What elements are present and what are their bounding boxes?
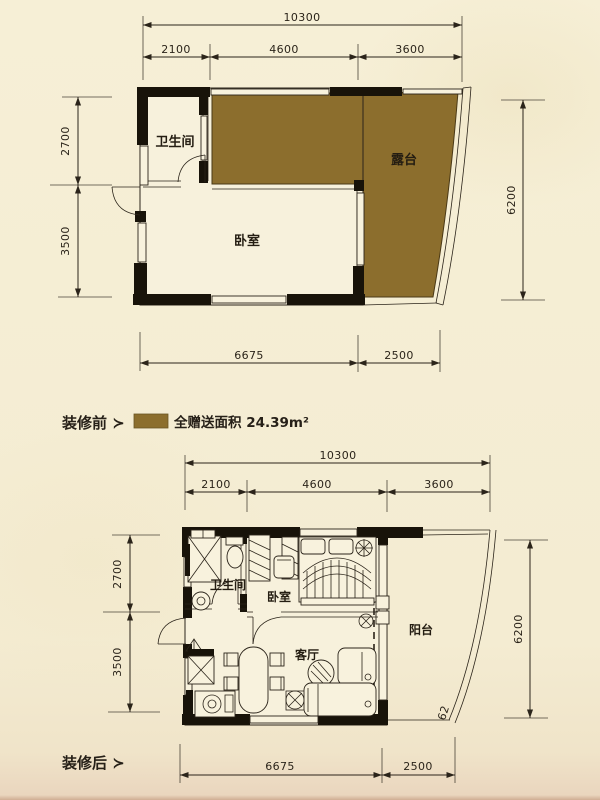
dim-h2: 3500 <box>59 226 72 256</box>
dim-w1: 2100 <box>161 43 191 56</box>
bathroom-cabinet <box>191 530 215 538</box>
dim-right-height-after: 6200 <box>512 614 525 644</box>
dim-right-height: 6200 <box>505 185 518 215</box>
dim-h2-after: 3500 <box>111 647 124 677</box>
armchair <box>274 556 294 578</box>
section-label-after: 装修后 ≻ <box>61 754 125 772</box>
dim-b2-after: 2500 <box>403 760 433 773</box>
dim-b1-after: 6675 <box>265 760 295 773</box>
dim-total-width-after: 10300 <box>320 449 357 462</box>
dim-w3: 3600 <box>395 43 425 56</box>
room-label-terrace: 露台 <box>391 152 417 168</box>
legend-gift-area-label: 全赠送面积 24.39m² <box>173 414 309 431</box>
dim-w3-after: 3600 <box>424 478 454 491</box>
dim-total-width: 10300 <box>284 11 321 24</box>
room-label-living: 客厅 <box>294 647 319 662</box>
entry-door-before <box>112 187 140 215</box>
room-label-balcony: 阳台 <box>409 622 433 637</box>
toilet <box>226 537 243 568</box>
room-label-bedroom-after: 卧室 <box>267 589 291 604</box>
wardrobe <box>249 535 270 581</box>
legend-swatch <box>134 414 168 428</box>
shower-stall <box>185 536 221 582</box>
dim-h1: 2700 <box>59 126 72 156</box>
plan-after: 10300 2100 4600 3600 2700 3500 6200 6675… <box>61 449 548 783</box>
room-label-bathroom-after: 卫生间 <box>210 577 246 592</box>
dim-w1-after: 2100 <box>201 478 231 491</box>
dim-b2: 2500 <box>384 349 414 362</box>
entry-door-after <box>158 618 186 644</box>
dim-h1-after: 2700 <box>111 559 124 589</box>
fridge <box>188 649 214 684</box>
washing-machine <box>192 592 210 610</box>
balcony-curve-inner <box>449 530 490 720</box>
plan-before-building <box>112 87 471 305</box>
round-rug <box>308 660 334 686</box>
balcony-curve-outer <box>455 530 496 723</box>
dim-b1: 6675 <box>234 349 264 362</box>
room-label-bathroom-before: 卫生间 <box>155 134 194 150</box>
dim-w2: 4600 <box>269 43 299 56</box>
floorplan-canvas: 10300 2100 4600 3600 2700 3500 6200 6675… <box>0 0 600 800</box>
legend-before: 装修前 ≻ 全赠送面积 24.39m² <box>61 414 309 432</box>
room-label-bedroom-before: 卧室 <box>234 233 260 249</box>
section-label-before: 装修前 ≻ <box>61 414 125 432</box>
plan-before: 10300 2100 4600 3600 2700 3500 6200 6675… <box>50 11 545 372</box>
dim-w2-after: 4600 <box>302 478 332 491</box>
